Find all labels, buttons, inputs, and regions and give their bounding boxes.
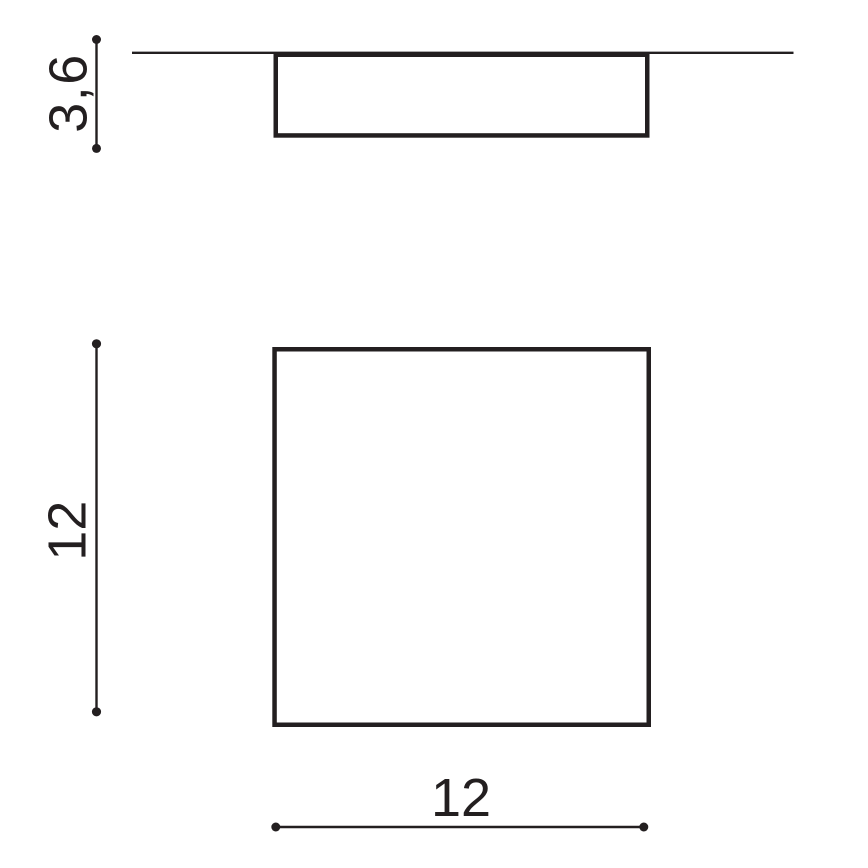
svg-text:12: 12 [431,768,491,828]
svg-text:12: 12 [38,501,98,561]
svg-text:3,6: 3,6 [39,53,99,133]
